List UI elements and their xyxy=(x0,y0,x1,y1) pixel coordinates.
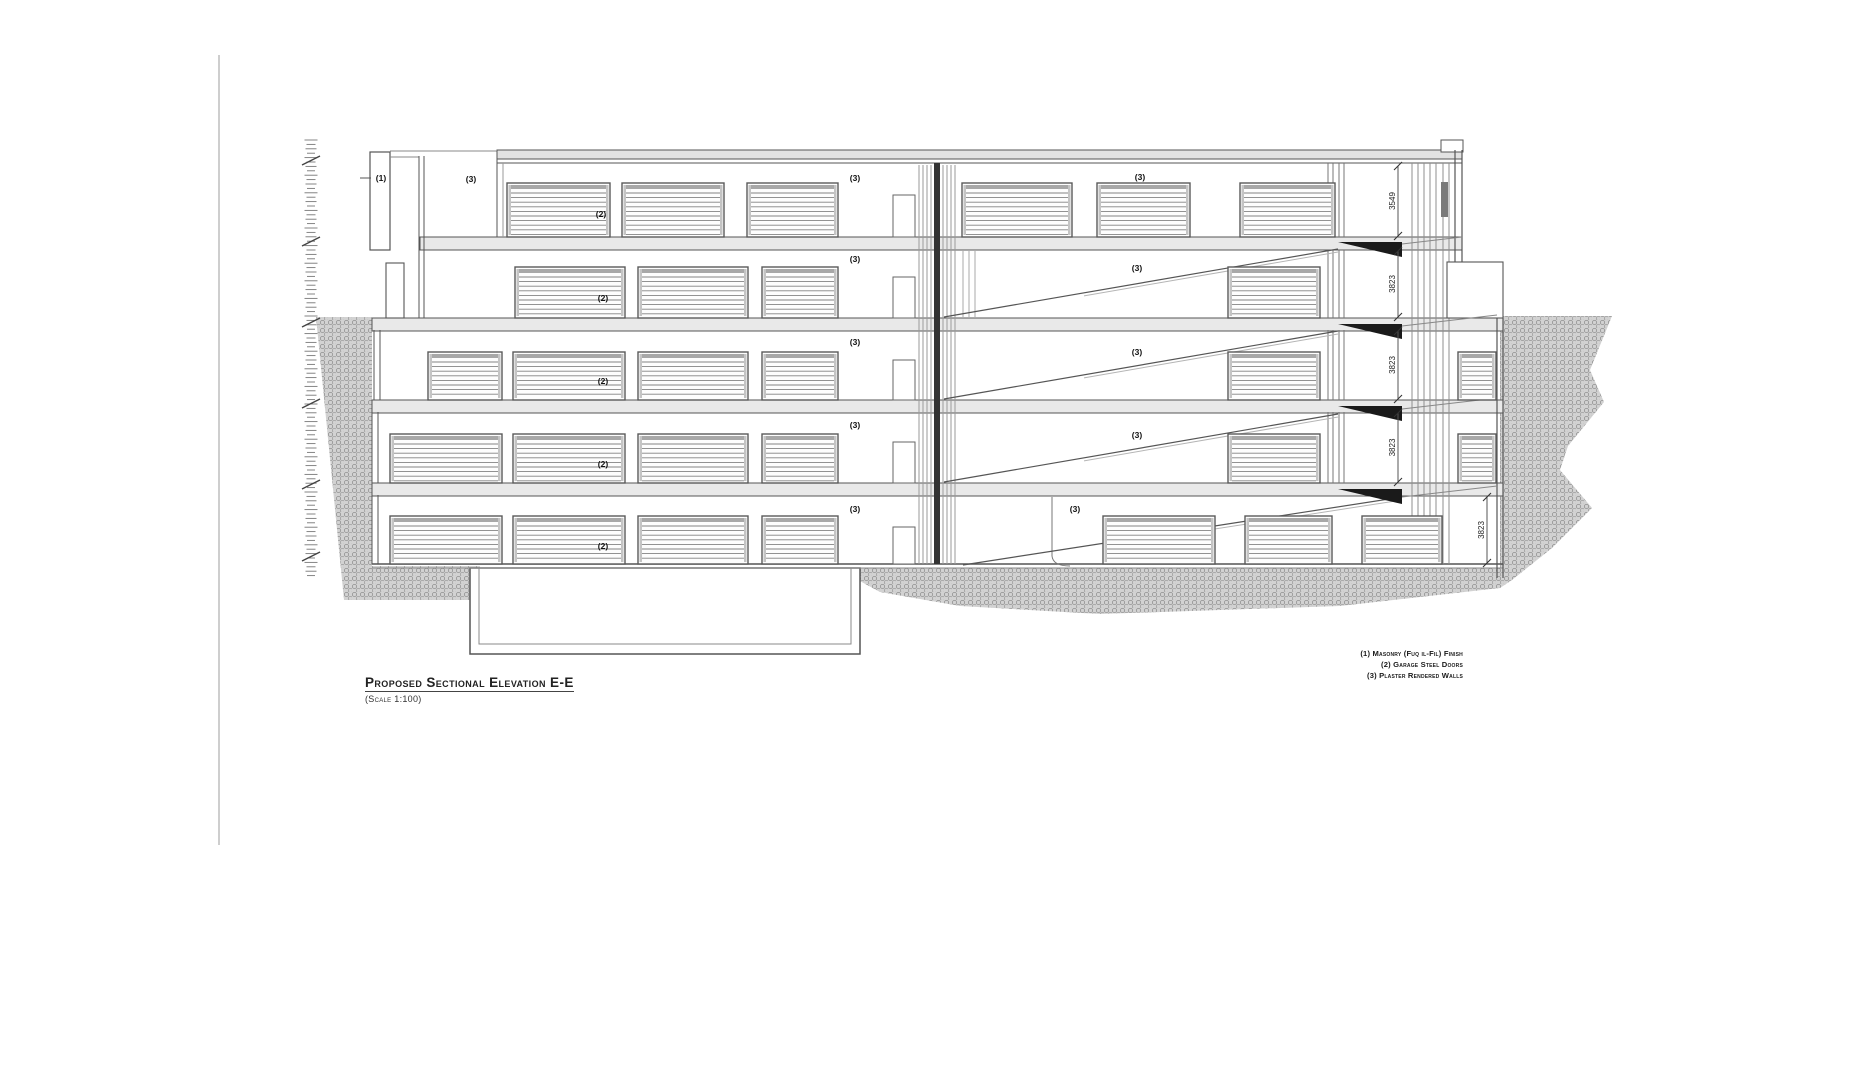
legend-line-plaster-walls: (3) Plaster Rendered Walls xyxy=(1250,670,1463,681)
garage-door xyxy=(762,267,838,318)
callout-plaster-rendered-wall: (3) xyxy=(850,420,861,430)
garage-door xyxy=(507,183,610,237)
garage-door xyxy=(762,434,838,483)
drawing-title: Proposed Sectional Elevation E-E xyxy=(365,675,574,692)
dimension-text: 3823 xyxy=(1388,438,1397,456)
dimension-text: 3549 xyxy=(1388,192,1397,210)
basement-outline xyxy=(470,568,860,654)
ground-hatch-right xyxy=(1500,316,1612,588)
garage-door xyxy=(390,434,502,483)
legend-line-masonry: (1) Masonry (Fuq il-Fil) Finish xyxy=(1250,648,1463,659)
door-opening xyxy=(893,195,915,237)
callout-plaster-rendered-wall: (3) xyxy=(1135,172,1146,182)
callout-plaster-rendered-wall: (3) xyxy=(850,337,861,347)
door-opening xyxy=(893,527,915,564)
callout-plaster-rendered-wall: (3) xyxy=(1070,504,1081,514)
callout-plaster-rendered-wall: (3) xyxy=(1132,347,1143,357)
garage-door xyxy=(515,267,625,318)
callout-garage-steel-door: (2) xyxy=(596,209,607,219)
callout-plaster-rendered-wall: (3) xyxy=(850,173,861,183)
dimension-text: 3823 xyxy=(1388,356,1397,374)
door-opening xyxy=(893,442,915,483)
garage-door xyxy=(1228,267,1320,318)
callout-plaster-rendered-wall: (3) xyxy=(1132,263,1143,273)
garage-door xyxy=(1458,434,1496,483)
callout-plaster-rendered-wall: (3) xyxy=(850,504,861,514)
ground-hatch-bottom xyxy=(858,568,1500,614)
callout-garage-steel-door: (2) xyxy=(598,459,609,469)
callout-garage-steel-door: (2) xyxy=(598,541,609,551)
drawing-scale-note: (Scale 1:100) xyxy=(365,694,574,704)
drawing-sheet: (3)(2)(3)(3)3549(2)(3)(3)3823(2)(3)(3)38… xyxy=(0,0,1850,1080)
door-opening xyxy=(893,277,915,318)
legend-line-garage-doors: (2) Garage Steel Doors xyxy=(1250,659,1463,670)
garage-door xyxy=(622,183,724,237)
callout-masonry: (1) xyxy=(376,173,387,183)
dimension-text: 3823 xyxy=(1477,521,1486,539)
title-block: Proposed Sectional Elevation E-E (Scale … xyxy=(365,674,574,704)
door-opening xyxy=(893,360,915,400)
garage-door xyxy=(1240,183,1335,237)
right-step-box xyxy=(1447,262,1503,318)
callout-plaster-rendered-wall: (3) xyxy=(1132,430,1143,440)
garage-door xyxy=(638,267,748,318)
callout-garage-steel-door: (2) xyxy=(598,376,609,386)
legend: (1) Masonry (Fuq il-Fil) Finish (2) Gara… xyxy=(1250,648,1463,681)
elevation-svg: (3)(2)(3)(3)3549(2)(3)(3)3823(2)(3)(3)38… xyxy=(0,0,1850,1080)
garage-door xyxy=(962,183,1072,237)
callout-plaster-rendered-wall: (3) xyxy=(466,174,477,184)
garage-door xyxy=(1228,434,1320,483)
callout-garage-steel-door: (2) xyxy=(598,293,609,303)
garage-door xyxy=(1097,183,1190,237)
window-slit xyxy=(1441,182,1448,217)
callout-plaster-rendered-wall: (3) xyxy=(850,254,861,264)
dimension-text: 3823 xyxy=(1388,275,1397,293)
level-staff xyxy=(302,140,320,576)
floor-slab xyxy=(420,237,1462,250)
garage-door xyxy=(747,183,838,237)
garage-door xyxy=(638,434,748,483)
